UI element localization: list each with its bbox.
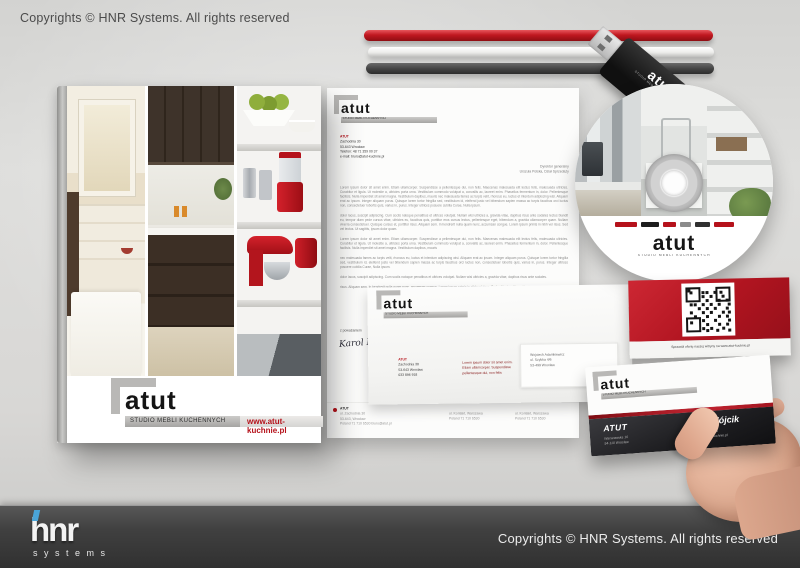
footer-line: Poland 71 710 6530 — [449, 416, 519, 421]
brochure-cover: atut STUDIO MEBLI KUCHENNYCH www.atut-ku… — [57, 86, 321, 443]
body-paragraph: nec malesuada fames ac turpis velit, rho… — [340, 256, 568, 269]
letterhead-addressee-block: Dyrektor generalny Urszula Polska, Dział… — [479, 164, 569, 183]
pen-red — [364, 30, 713, 41]
brochure-photo-red-appliances — [237, 86, 321, 376]
hnr-logo-sub: systems — [30, 548, 112, 558]
qr-card-red-face — [628, 277, 790, 341]
disc-partner-logos — [575, 222, 773, 227]
disc-photo-shelves-right — [707, 84, 773, 216]
footer-bar: hnr systems Copyrights © HNR Systems. Al… — [0, 505, 800, 568]
card-company: ATUT — [603, 422, 628, 434]
brochure-spine — [57, 86, 67, 443]
business-card-logo: atut STUDIO MEBLI KUCHENNYCH — [600, 371, 697, 400]
envelope-logo: atut STUDIO MEBLI KUCHENNYCH — [383, 295, 467, 318]
pen-white — [368, 47, 714, 57]
atut-logo-text: atut — [125, 387, 323, 413]
qr-finder-icon — [686, 317, 701, 332]
brochure-photo-dark-kitchen — [148, 86, 234, 376]
top-copyright-text: Copyrights © HNR Systems. All rights res… — [20, 11, 290, 25]
letterhead-footer: ATUT ul. Zachodnia 30 53-643, Wrocław Po… — [327, 402, 579, 439]
hnr-logo-text: hnr — [30, 513, 112, 546]
brochure-logo-band: atut STUDIO MEBLI KUCHENNYCH www.atut-ku… — [67, 376, 321, 443]
brochure-photo-collage — [67, 86, 321, 376]
disc-photo-kitchen-left — [575, 84, 641, 216]
disc-logo-text: atut — [575, 233, 773, 254]
hnr-systems-logo: hnr systems — [30, 513, 112, 558]
disc-hole — [661, 170, 687, 196]
body-paragraph: dolor lacus, suscipit adipiscing. Cum so… — [340, 275, 568, 279]
atut-tagline: STUDIO MEBLI KUCHENNYCH — [341, 117, 437, 120]
disc-hub — [645, 154, 703, 212]
qr-caption: Sprawdź ofertę naszej witryny na www.atu… — [669, 344, 752, 349]
qr-code — [681, 282, 735, 336]
cd-disc: atut STUDIO MEBLI KUCHENNYCH — [575, 84, 773, 282]
addressee-line: Urszula Polska, Dział Sprzedaży — [479, 169, 569, 174]
qr-business-card: Sprawdź ofertę naszej witryny na www.atu… — [628, 277, 791, 358]
disc-brand-block: atut STUDIO MEBLI KUCHENNYCH — [575, 233, 773, 260]
letterhead-logo: atut STUDIO MEBLI KUCHENNYCH — [341, 101, 437, 123]
atut-logo-text: atut — [383, 295, 467, 310]
brochure-photo-classic-kitchen — [67, 86, 145, 376]
body-paragraph: Lorem ipsum dolor sit amet enim. Etiam u… — [340, 237, 568, 250]
envelope-sender-block: ATUT Zachodnia 30 53-643 Wrocław 033 896… — [398, 357, 458, 395]
brochure-front: atut STUDIO MEBLI KUCHENNYCH www.atut-ku… — [67, 86, 321, 443]
mockup-canvas: Copyrights © HNR Systems. All rights res… — [0, 0, 800, 568]
footer-line: Poland 71 710 6530 biuro@atut.pl — [340, 421, 440, 426]
atut-tagline: STUDIO MEBLI KUCHENNYCH — [125, 416, 240, 427]
body-paragraph: dolor lacus, suscipit adipiscing. Cum so… — [340, 214, 568, 232]
sender-line: 033 896 918 — [398, 372, 458, 378]
footer-copyright-text: Copyrights © HNR Systems. All rights res… — [498, 531, 778, 546]
atut-website: www.atut-kuchnie.pl — [240, 416, 323, 427]
footer-line: Poland 71 710 6530 — [515, 416, 577, 421]
footer-bullet-icon — [333, 408, 337, 412]
qr-finder-icon — [685, 287, 700, 302]
disc-tagline: STUDIO MEBLI KUCHENNYCH — [575, 254, 773, 257]
atut-tagline: STUDIO MEBLI KUCHENNYCH — [384, 311, 468, 315]
body-paragraph: Lorem ipsum dolor sit amet enim. Etiam u… — [340, 186, 568, 208]
sender-line: e-mail: biuro@atut-kuchnie.pl — [340, 154, 430, 159]
atut-logo-text: atut — [341, 101, 437, 115]
qr-finder-icon — [715, 287, 730, 302]
letterhead-sender-block: ATUT Zachodnia 30 53-643 Wrocław Telefon… — [340, 134, 430, 180]
atut-logo: atut STUDIO MEBLI KUCHENNYCH www.atut-ku… — [125, 387, 323, 427]
